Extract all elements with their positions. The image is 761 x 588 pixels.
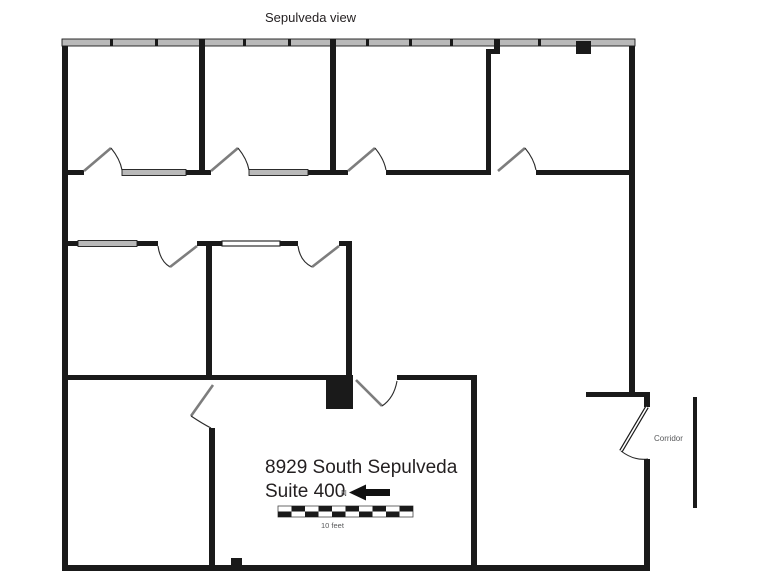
top-row-front-walls — [62, 148, 629, 176]
north-arrow-icon: N — [341, 485, 390, 501]
door-leaf-mid-office2 — [312, 246, 339, 267]
scale-label: 10 feet — [321, 521, 345, 530]
wall-left — [62, 39, 68, 571]
door-leaf-office4 — [498, 148, 525, 171]
door-arc-mid-office2 — [298, 246, 312, 267]
address-line2: Suite 400 — [265, 481, 345, 502]
door-leaf-office2 — [211, 148, 238, 171]
door-arc-office1 — [111, 148, 122, 170]
door-arc-center-room — [382, 381, 397, 406]
entry-lower-wall — [644, 459, 650, 565]
door-arc-mid-office1 — [158, 246, 170, 267]
top-row-partitions — [199, 39, 591, 175]
column-center — [326, 379, 353, 409]
wall-right — [629, 39, 635, 395]
suite-entry: Corridor — [586, 392, 697, 565]
door-leaf-office3 — [348, 148, 375, 171]
partition-mid-2 — [346, 241, 352, 377]
floor-plan: Sepulveda view — [0, 0, 761, 588]
door-arc-bottom-left-room — [191, 416, 211, 428]
window-wall-top — [62, 39, 635, 46]
door-arc-office2 — [238, 148, 249, 170]
middle-row-front-walls — [68, 241, 352, 378]
north-label: N — [341, 489, 347, 498]
door-arc-office4 — [525, 148, 536, 170]
partition-2 — [330, 39, 336, 175]
window-band — [62, 39, 635, 46]
partition-lower-right — [471, 375, 477, 565]
entry-door-arc — [621, 451, 648, 459]
column-top-right — [576, 41, 591, 54]
wall-long-left — [62, 375, 353, 380]
sepulveda-view-label: Sepulveda view — [265, 10, 357, 25]
address-line1: 8929 South Sepulveda — [265, 457, 458, 478]
corridor-label: Corridor — [654, 434, 683, 443]
door-leaf-bottom-left-room — [191, 385, 213, 416]
partition-3-jogged — [486, 39, 500, 175]
partition-1 — [199, 39, 205, 175]
sidelight-mid-office2 — [222, 241, 280, 246]
door-arc-office3 — [375, 148, 386, 170]
partition-mid-1 — [206, 241, 212, 377]
entry-header-wall — [586, 392, 650, 397]
door-leaf-office1 — [84, 148, 111, 171]
sidelight-office1 — [122, 170, 186, 176]
wall-long-right — [397, 375, 477, 380]
partition-bottom-left — [209, 428, 215, 565]
north-arrow-glyph — [349, 485, 390, 501]
entry-hinge-jamb — [644, 397, 650, 407]
sidelight-mid-office1 — [78, 241, 137, 247]
door-leaf-center-room — [356, 380, 382, 406]
door-leaf-mid-office1 — [170, 246, 197, 267]
column-bottom-small — [231, 558, 242, 566]
wall-bottom — [62, 565, 650, 571]
sidelight-office2 — [249, 170, 308, 176]
floor-plan-page: Sepulveda view — [0, 0, 761, 588]
scale-bar: 10 feet — [278, 506, 413, 530]
corridor-wall — [693, 397, 697, 508]
